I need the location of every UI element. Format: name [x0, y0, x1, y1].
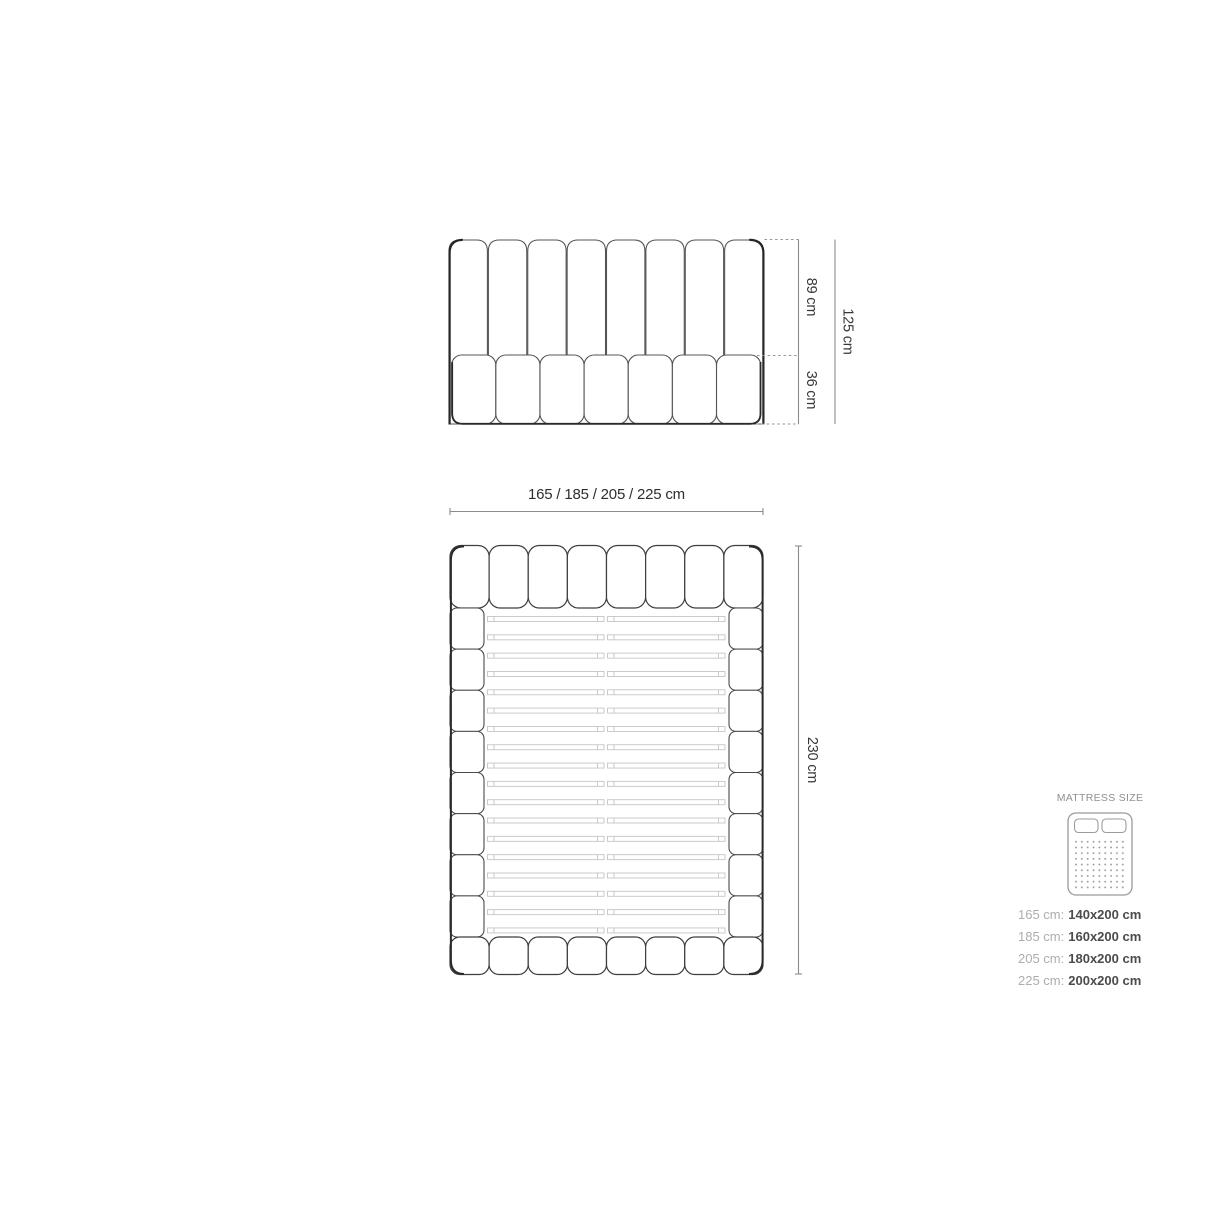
- base-cushion: [628, 355, 672, 424]
- rail-segment: [450, 731, 484, 772]
- rail-segment: [729, 649, 763, 690]
- head-cushion: [607, 546, 646, 609]
- rail-segment: [729, 773, 763, 814]
- foot-cushion: [607, 937, 646, 975]
- head-cushion: [567, 546, 606, 609]
- foot-cushion: [685, 937, 724, 975]
- base-height-label: 36 cm: [803, 371, 819, 410]
- slats: [488, 617, 726, 933]
- rail-segment: [450, 649, 484, 690]
- rail-segment: [450, 896, 484, 937]
- mattress-size-list: 165 cm:140x200 cm 185 cm:160x200 cm 205 …: [1018, 904, 1132, 992]
- head-cushion: [724, 546, 763, 609]
- headboard-row-cushions: [450, 546, 763, 609]
- size-row: 185 cm:160x200 cm: [1018, 926, 1132, 948]
- width-dimension: 165 / 185 / 205 / 225 cm: [450, 486, 763, 515]
- slat: [488, 635, 726, 640]
- mattress-icon: [1068, 813, 1132, 895]
- base-cushion: [584, 355, 628, 424]
- size-option-value: 200x200 cm: [1068, 973, 1141, 988]
- rail-segment: [450, 608, 484, 649]
- diagram-canvas: 89 cm 36 cm 125 cm 165 / 185 / 205 / 225…: [0, 0, 1214, 1214]
- total-height-label: 125 cm: [840, 308, 856, 354]
- head-cushion: [528, 546, 567, 609]
- rail-segment: [450, 855, 484, 896]
- head-cushion: [450, 546, 489, 609]
- rail-segment: [450, 690, 484, 731]
- slat: [488, 745, 726, 750]
- size-option-label: 185 cm:: [1018, 929, 1064, 944]
- rail-segment: [450, 814, 484, 855]
- foot-cushion: [646, 937, 685, 975]
- size-option-value: 180x200 cm: [1068, 951, 1141, 966]
- rail-segment: [729, 855, 763, 896]
- head-cushion: [646, 546, 685, 609]
- slat: [488, 617, 726, 622]
- size-row: 205 cm:180x200 cm: [1018, 948, 1132, 970]
- slat: [488, 800, 726, 805]
- foot-cushion: [450, 937, 489, 975]
- mattress-size-title: MATTRESS SIZE: [1052, 792, 1148, 804]
- size-row: 225 cm:200x200 cm: [1018, 970, 1132, 992]
- foot-cushion: [528, 937, 567, 975]
- slat: [488, 873, 726, 878]
- foot-cushion: [567, 937, 606, 975]
- head-cushion: [685, 546, 724, 609]
- size-option-label: 205 cm:: [1018, 951, 1064, 966]
- bed-dimensions-diagram: 89 cm 36 cm 125 cm 165 / 185 / 205 / 225…: [0, 0, 1214, 1214]
- left-rail-segments: [450, 608, 484, 937]
- base-cushion: [672, 355, 716, 424]
- foot-cushion: [489, 937, 528, 975]
- base-cushion: [452, 355, 496, 424]
- front-view: 89 cm 36 cm 125 cm: [449, 240, 856, 425]
- slat: [488, 708, 726, 713]
- top-view: 230 cm: [450, 546, 820, 975]
- slat: [488, 690, 726, 695]
- mattress-dot-grid: [1074, 839, 1128, 891]
- rail-segment: [729, 896, 763, 937]
- slat: [488, 818, 726, 823]
- right-rail-segments: [729, 608, 763, 937]
- width-options-label: 165 / 185 / 205 / 225 cm: [528, 486, 685, 503]
- slat: [488, 891, 726, 896]
- footer-row-cushions: [450, 937, 763, 975]
- size-option-label: 225 cm:: [1018, 973, 1064, 988]
- base-cushion: [717, 355, 761, 424]
- slat: [488, 836, 726, 841]
- headboard-height-label: 89 cm: [803, 278, 819, 317]
- rail-segment: [729, 608, 763, 649]
- rail-segment: [450, 773, 484, 814]
- slat: [488, 910, 726, 915]
- slat: [488, 763, 726, 768]
- rail-segment: [729, 814, 763, 855]
- slat: [488, 855, 726, 860]
- slat: [488, 653, 726, 658]
- slat: [488, 928, 726, 933]
- front-base-cushions: [452, 355, 761, 424]
- depth-label: 230 cm: [804, 737, 820, 783]
- rail-segment: [729, 690, 763, 731]
- head-cushion: [489, 546, 528, 609]
- slat: [488, 726, 726, 731]
- size-option-label: 165 cm:: [1018, 907, 1064, 922]
- slat: [488, 671, 726, 676]
- pillow-left: [1075, 819, 1099, 833]
- size-row: 165 cm:140x200 cm: [1018, 904, 1132, 926]
- size-option-value: 160x200 cm: [1068, 929, 1141, 944]
- base-cushion: [540, 355, 584, 424]
- rail-segment: [729, 731, 763, 772]
- size-option-value: 140x200 cm: [1068, 907, 1141, 922]
- foot-cushion: [724, 937, 763, 975]
- pillow-right: [1102, 819, 1126, 833]
- base-cushion: [496, 355, 540, 424]
- slat: [488, 781, 726, 786]
